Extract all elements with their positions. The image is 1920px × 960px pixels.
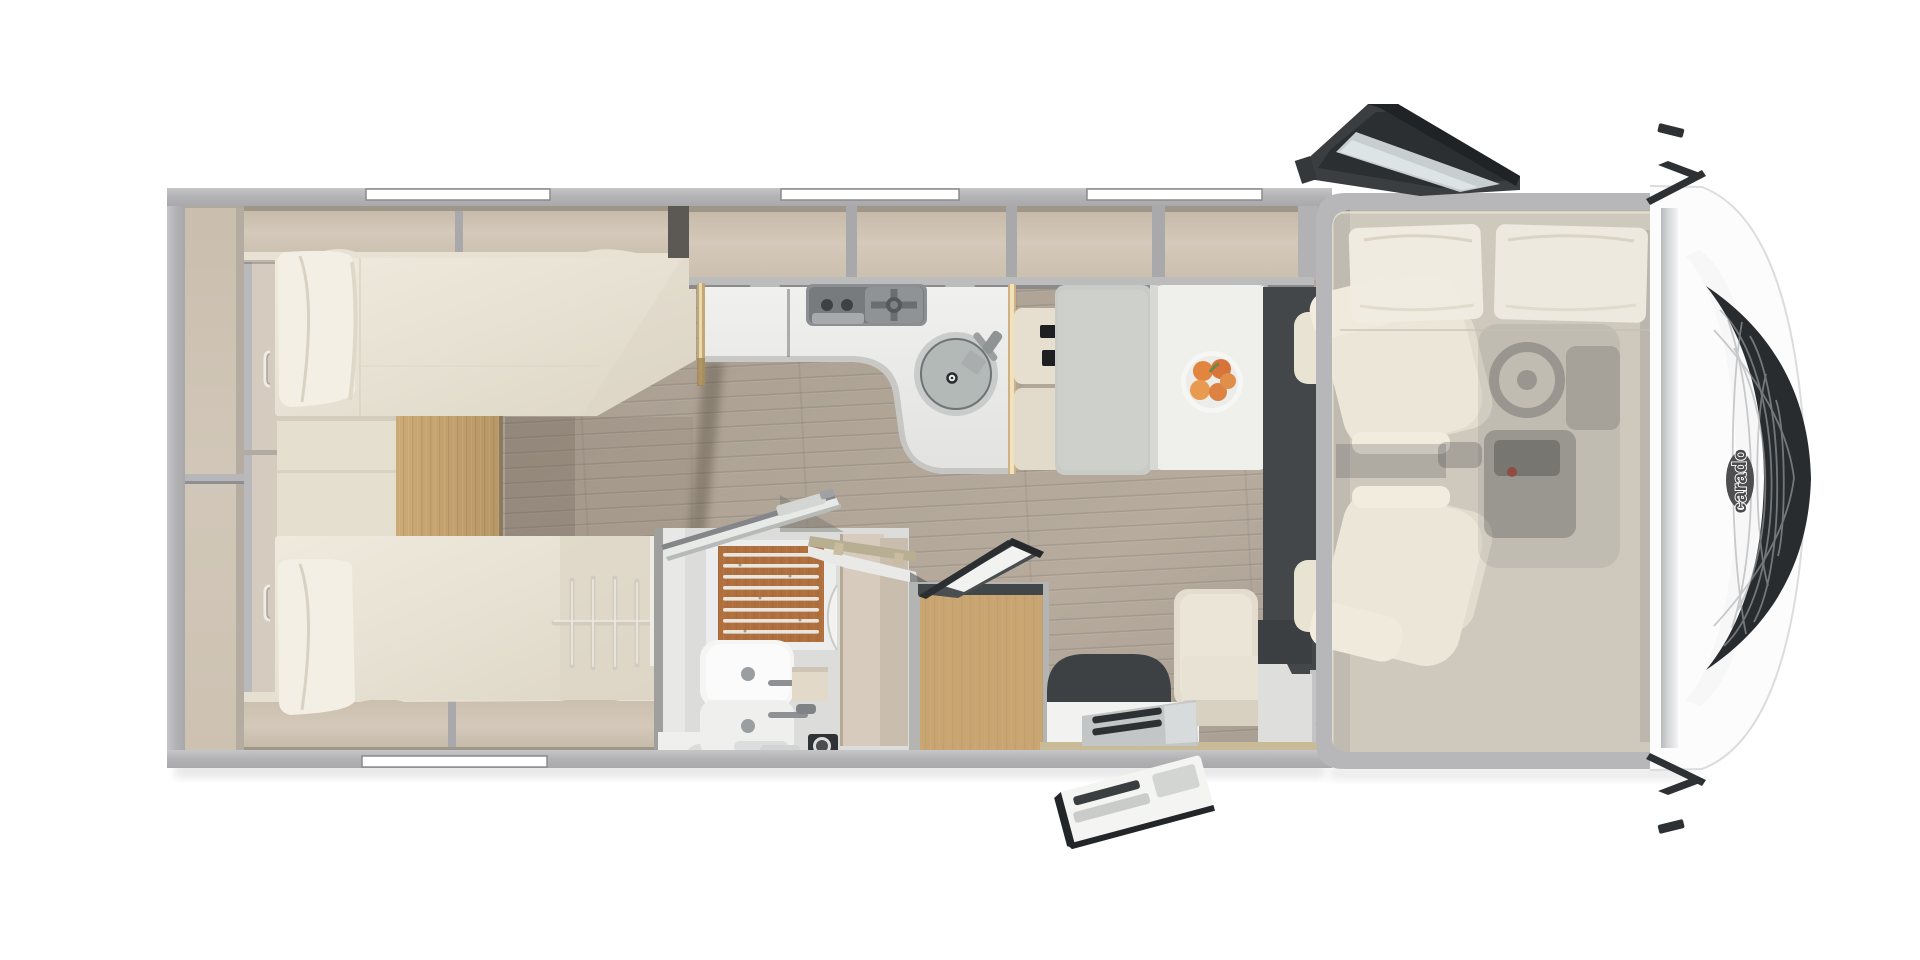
svg-text:carado: carado	[1730, 449, 1751, 514]
